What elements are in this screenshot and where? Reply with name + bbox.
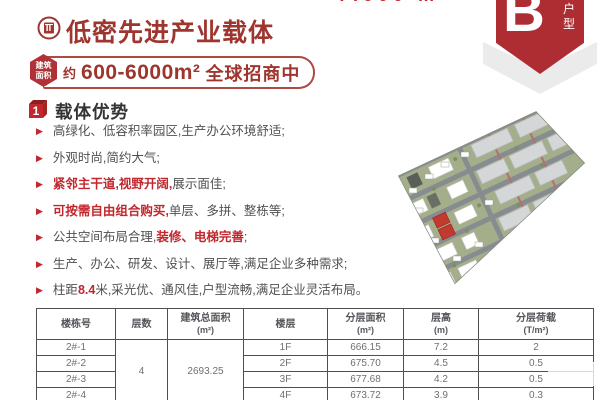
cell-load: 0.3 [479,388,594,400]
bullet-text: 柱距 [53,283,78,297]
bullet-text-highlight: 紧邻主干道,视野开阔, [53,177,172,191]
cropped-top-text: 7.000 m [338,0,439,6]
cell-floors-count: 4 [116,340,168,400]
bullet-text: 外观时尚,简约大气; [53,151,160,165]
section-number: 1 [33,104,40,118]
badge-type-char-2: 型 [563,17,575,32]
cell-building: 2#-4 [37,388,116,400]
col-header: 层高(m) [404,309,479,340]
list-item: ▶生产、办公、研发、设计、展厅等,满足企业多种需求; [36,258,381,271]
cell-total-area: 2693.25 [168,340,244,400]
bullet-text: 米,采光优、通风佳,户型流畅,满足企业灵活布局。 [95,283,368,297]
area-suffix: 全球招商中 [205,60,300,86]
cell-area: 666.15 [328,340,404,356]
area-range-pill: 约 600-6000m² 全球招商中 [43,56,315,89]
cell-area: 675.70 [328,356,404,372]
area-tag-line2: 面积 [36,70,52,80]
table-row: 2#-1 4 2693.25 1F 666.15 7.2 2 [37,340,594,356]
flyer-page: 7.000 m 低密先进产业载体 B 户 型 建筑 面积 约 600-6000m… [0,0,600,400]
bullet-arrow-icon: ▶ [36,153,43,163]
cell-height: 7.2 [404,340,479,356]
bullet-text-highlight: 可按需自由组合购买, [53,204,169,218]
bullet-text-highlight: 8.4 [78,283,95,297]
list-item: ▶可按需自由组合购买,单层、多拼、整栋等; [36,205,381,218]
list-item: ▶公共空间布局合理,装修、电梯完善; [36,231,381,244]
bullet-arrow-icon: ▶ [36,179,43,189]
section-number-cube-icon: 1 [26,98,48,120]
cell-area: 673.72 [328,388,404,400]
col-header: 分层面积(m²) [328,309,404,340]
floor-data-table: 楼栋号 层数 建筑总面积(m²) 楼层 分层面积(m²) 层高(m) 分层荷载(… [36,308,594,400]
bullet-text: 展示面佳; [172,177,225,191]
bullet-text: 单层、多拼、整栋等; [169,204,285,218]
badge-letter: B [503,0,545,41]
list-item: ▶紧邻主干道,视野开阔,展示面佳; [36,178,381,191]
cell-floor: 1F [244,340,328,356]
page-title: 低密先进产业载体 [66,13,274,49]
list-item: ▶柱距8.4米,采光优、通风佳,户型流畅,满足企业灵活布局。 [36,284,381,297]
badge-type-label: 户 型 [563,2,575,32]
col-header: 楼栋号 [37,309,116,340]
list-item: ▶外观时尚,简约大气; [36,152,381,165]
cell-building: 2#-2 [37,356,116,372]
unit-type-badge: B 户 型 [496,0,584,100]
site-plan-map [385,108,600,300]
bullet-text-highlight: 装修、电梯完善 [156,230,244,244]
bullet-arrow-icon: ▶ [36,206,43,216]
area-tag-hexagon: 建筑 面积 [29,54,58,87]
col-header: 楼层 [244,309,328,340]
col-header: 建筑总面积(m²) [168,309,244,340]
cell-building: 2#-3 [37,372,116,388]
col-header: 分层荷载(T/m²) [479,309,594,340]
table-header-row: 楼栋号 层数 建筑总面积(m²) 楼层 分层面积(m²) 层高(m) 分层荷载(… [37,309,594,340]
watermark-overlay [548,362,600,386]
cell-load: 2 [479,340,594,356]
bullet-arrow-icon: ▶ [36,285,43,295]
area-prefix: 约 [63,63,76,82]
cell-height: 4.5 [404,356,479,372]
cell-building: 2#-1 [37,340,116,356]
cell-height: 4.2 [404,372,479,388]
cell-area: 677.68 [328,372,404,388]
bullet-text: 生产、办公、研发、设计、展厅等,满足企业多种需求; [53,257,347,271]
area-range: 600-6000m² [81,61,200,85]
bullet-text: 公共空间布局合理, [53,230,156,244]
col-header: 层数 [116,309,168,340]
cell-floor: 3F [244,372,328,388]
cell-height: 3.9 [404,388,479,400]
list-item: ▶高绿化、低容积率园区,生产办公环境舒适; [36,125,381,138]
badge-type-char-1: 户 [563,2,575,17]
bullet-arrow-icon: ▶ [36,232,43,242]
advantage-list: ▶高绿化、低容积率园区,生产办公环境舒适; ▶外观时尚,简约大气; ▶紧邻主干道… [36,125,381,311]
area-tag-line1: 建筑 [35,60,52,70]
bullet-arrow-icon: ▶ [36,259,43,269]
section-title: 载体优势 [55,99,129,124]
cell-floor: 4F [244,388,328,400]
bullet-arrow-icon: ▶ [36,126,43,136]
seal-logo-icon [37,16,61,40]
cell-floor: 2F [244,356,328,372]
bullet-text: ; [244,230,247,244]
bullet-text: 高绿化、低容积率园区,生产办公环境舒适; [53,124,285,138]
